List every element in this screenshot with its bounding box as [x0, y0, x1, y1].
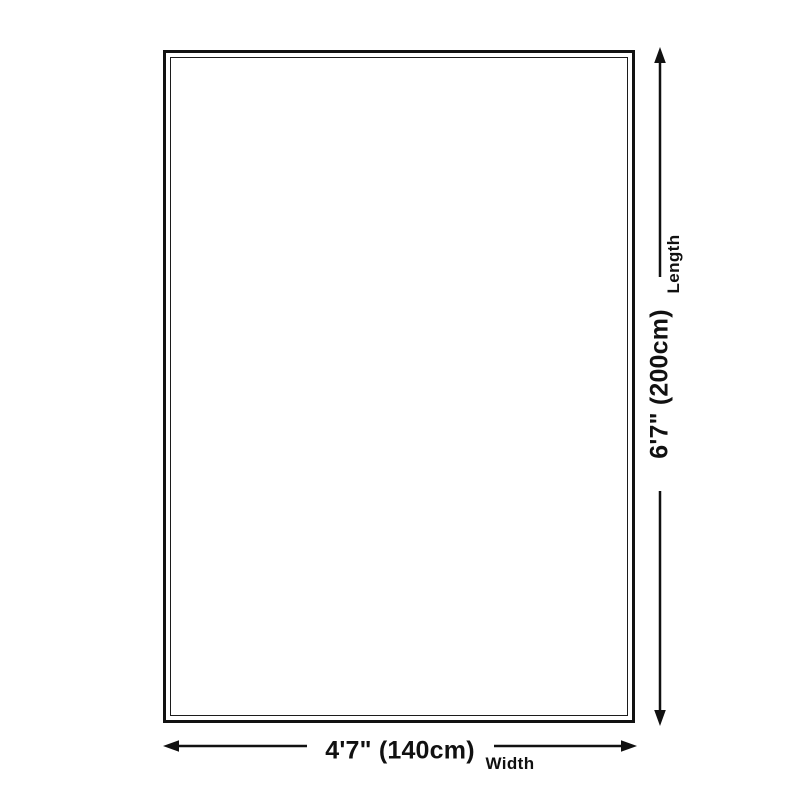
arrow-down-icon — [654, 710, 666, 726]
arrow-left-icon — [163, 740, 179, 752]
width-value-label: 4'7" (140cm) — [325, 737, 474, 766]
arrow-right-icon — [621, 740, 637, 752]
length-axis-label: Length — [664, 234, 684, 293]
product-outline-rectangle — [163, 50, 635, 723]
length-value-label: 6'7" (200cm) — [646, 309, 675, 458]
product-outline-inner-border — [170, 57, 628, 716]
width-axis-label: Width — [485, 754, 534, 774]
arrow-up-icon — [654, 47, 666, 63]
dimension-diagram: 6'7" (200cm) Length 4'7" (140cm) Width — [0, 0, 800, 800]
